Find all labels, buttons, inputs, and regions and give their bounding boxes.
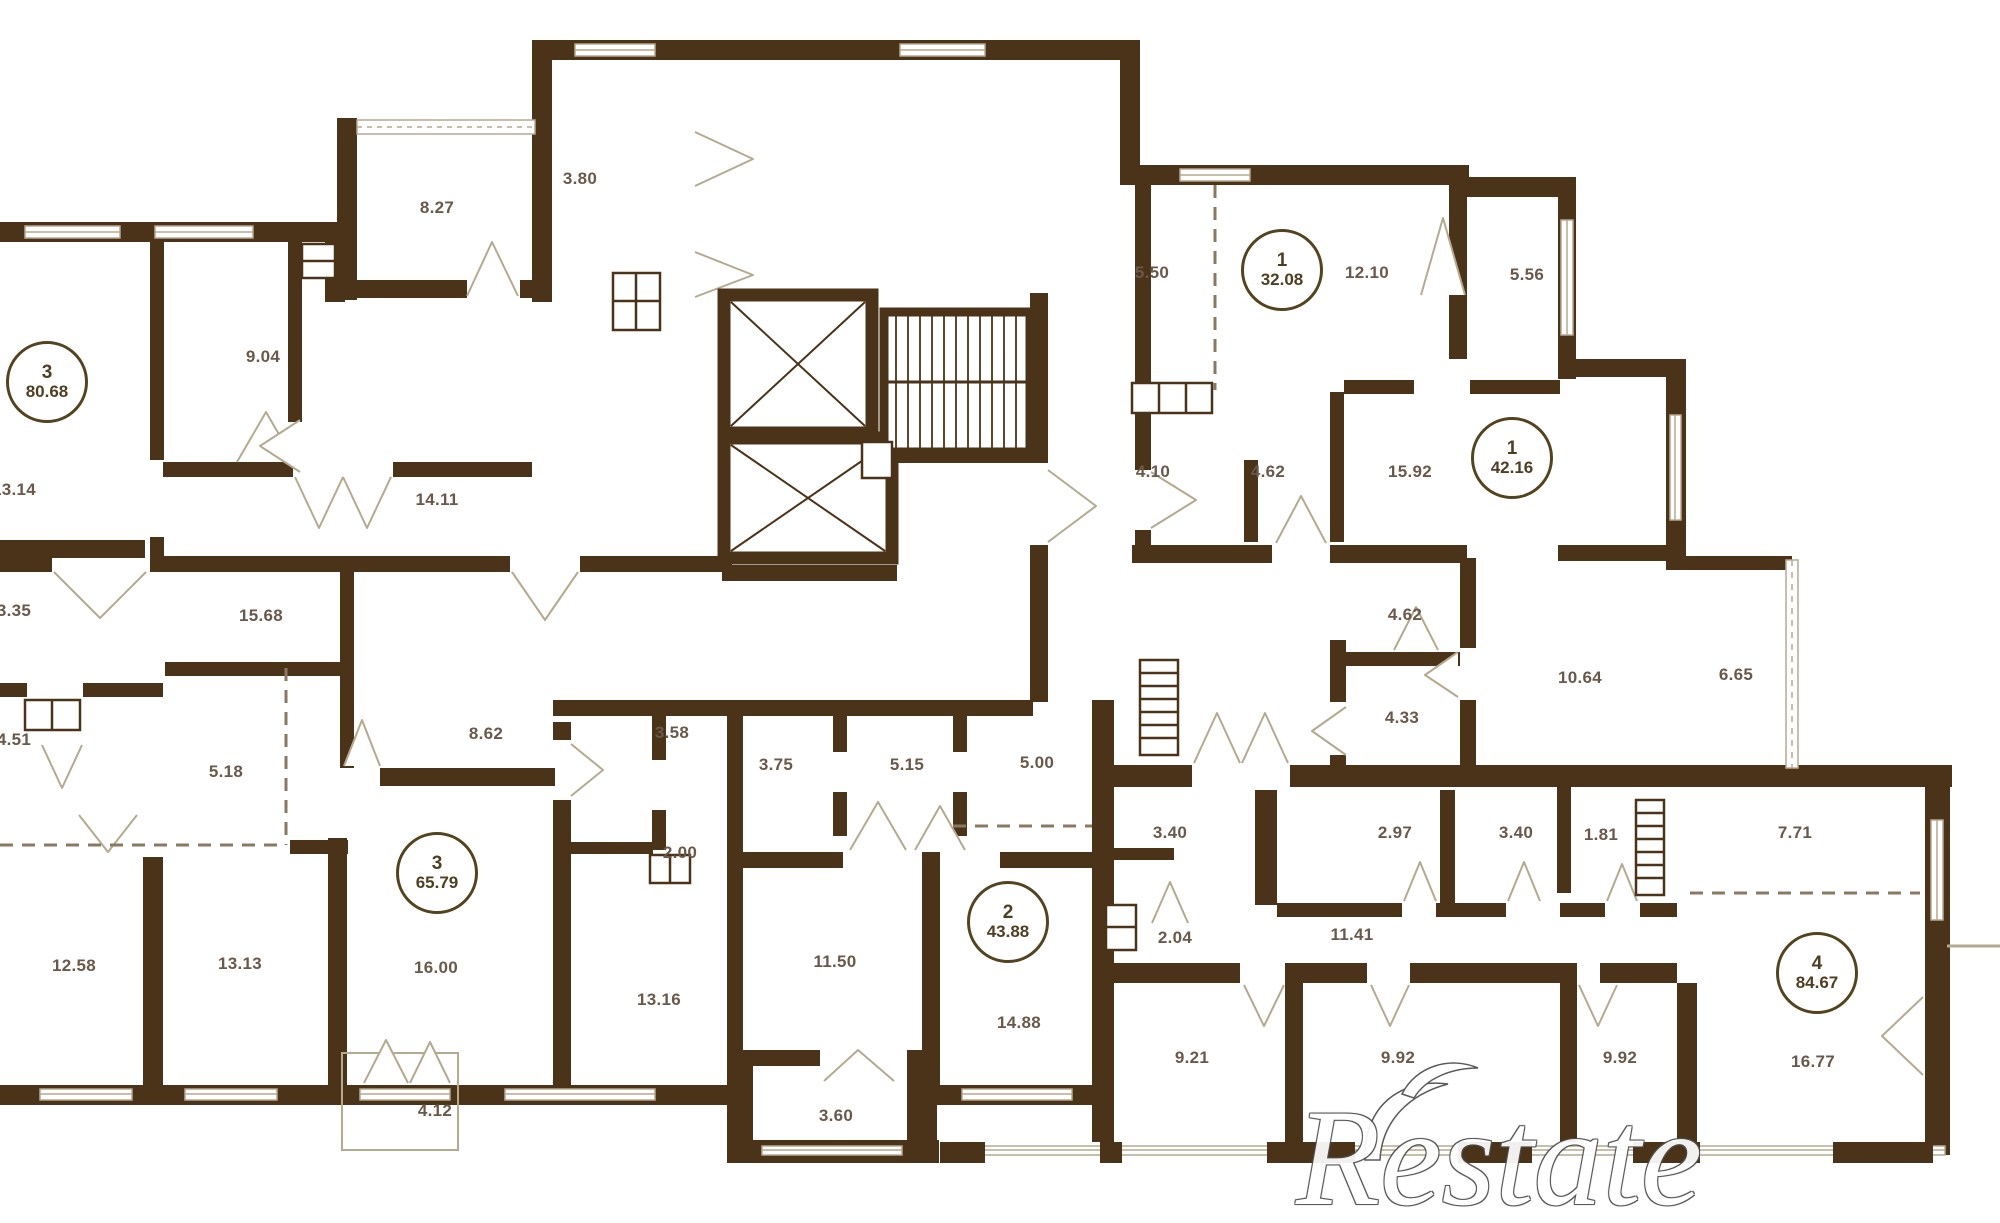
room-area-label: 14.11 — [415, 490, 458, 510]
room-area-label: 4.51 — [0, 730, 31, 750]
apartment-badge: 380.68 — [6, 341, 88, 423]
room-area-label: 4.33 — [1385, 708, 1419, 728]
room-area-label: 1.81 — [1584, 825, 1618, 845]
apartment-area: 32.08 — [1261, 271, 1304, 289]
watermark-text: Restate — [1296, 1081, 1702, 1223]
apartment-area: 42.16 — [1491, 459, 1534, 477]
apartment-badge: 484.67 — [1776, 932, 1858, 1014]
room-area-label: 5.18 — [209, 762, 243, 782]
apartment-rooms-count: 4 — [1812, 954, 1823, 975]
room-area-label: 16.77 — [1791, 1052, 1835, 1072]
watermark: Restate — [1296, 1078, 2000, 1223]
room-area-label: 7.71 — [1778, 823, 1812, 843]
room-area-label: 8.27 — [420, 198, 454, 218]
room-area-label: 5.15 — [890, 755, 924, 775]
room-area-label: 4.62 — [1388, 605, 1422, 625]
room-area-label: 10.64 — [1558, 668, 1602, 688]
room-area-label: 16.00 — [414, 958, 458, 978]
room-area-label: 3.80 — [563, 169, 597, 189]
room-area-label: 9.04 — [246, 347, 280, 367]
room-area-label: 3.58 — [655, 723, 689, 743]
apartment-rooms-count: 2 — [1003, 903, 1014, 924]
room-area-label: 8.62 — [469, 724, 503, 744]
apartment-rooms-count: 1 — [1277, 251, 1288, 272]
apartment-badge: 132.08 — [1241, 229, 1323, 311]
apartment-area: 43.88 — [987, 923, 1030, 941]
room-area-label: 4.62 — [1251, 462, 1285, 482]
room-area-label: 13.13 — [218, 954, 262, 974]
room-area-label: 15.92 — [1388, 462, 1432, 482]
room-area-label: 4.12 — [418, 1101, 452, 1121]
room-area-label: 9.21 — [1175, 1048, 1209, 1068]
room-area-label: 3.75 — [759, 755, 793, 775]
room-area-label: 6.65 — [1719, 665, 1753, 685]
room-area-label: 3.60 — [819, 1106, 853, 1126]
room-area-label: 5.56 — [1510, 265, 1544, 285]
room-area-label: 2.00 — [663, 843, 697, 863]
room-area-label: 14.88 — [997, 1013, 1041, 1033]
apartment-rooms-count: 1 — [1507, 439, 1518, 460]
room-area-label: 15.68 — [239, 606, 283, 626]
apartment-badge: 243.88 — [967, 881, 1049, 963]
room-area-label: 9.92 — [1603, 1048, 1637, 1068]
room-area-label: 2.97 — [1378, 823, 1412, 843]
room-area-label: 5.00 — [1020, 753, 1054, 773]
room-area-label: 12.58 — [52, 956, 96, 976]
apartment-area: 84.67 — [1796, 974, 1839, 992]
room-area-label: 9.92 — [1381, 1048, 1415, 1068]
apartment-badge: 365.79 — [396, 832, 478, 914]
apartment-badge: 142.16 — [1471, 417, 1553, 499]
apartment-rooms-count: 3 — [42, 363, 53, 384]
room-area-label: 4.10 — [1136, 462, 1170, 482]
room-area-label: 3.40 — [1153, 823, 1187, 843]
room-area-label: 11.41 — [1330, 925, 1373, 945]
apartment-rooms-count: 3 — [432, 854, 443, 875]
apartment-area: 80.68 — [26, 383, 69, 401]
apartment-area: 65.79 — [416, 874, 459, 892]
room-area-label: 5.50 — [1135, 263, 1169, 283]
floor-plan-stage: 8.273.809.0413.1414.1115.683.354.515.181… — [0, 0, 2000, 1223]
labels-layer: 8.273.809.0413.1414.1115.683.354.515.181… — [0, 0, 2000, 1223]
room-area-label: 2.04 — [1158, 928, 1192, 948]
room-area-label: 13.16 — [637, 990, 681, 1010]
room-area-label: 3.40 — [1499, 823, 1533, 843]
room-area-label: 13.14 — [0, 480, 36, 500]
room-area-label: 3.35 — [0, 601, 31, 621]
room-area-label: 11.50 — [813, 952, 856, 972]
room-area-label: 12.10 — [1345, 263, 1389, 283]
